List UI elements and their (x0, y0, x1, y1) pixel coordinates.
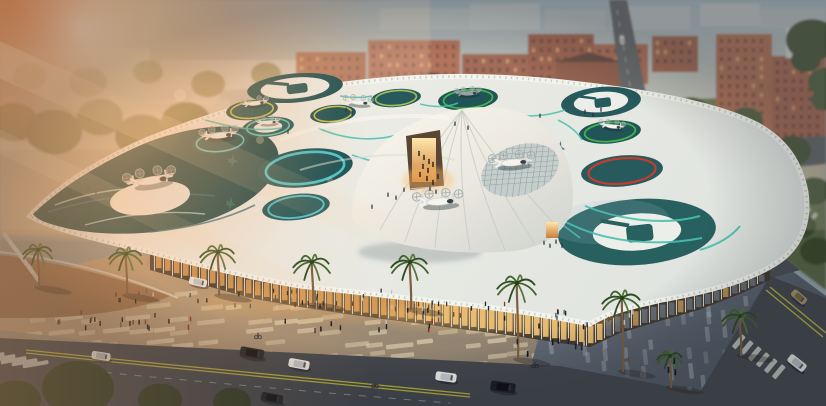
skyport-rendering: Aerial rendering of an Uber skyport term… (0, 0, 826, 406)
skyport-scene (0, 0, 826, 406)
lens-flare (0, 0, 826, 406)
